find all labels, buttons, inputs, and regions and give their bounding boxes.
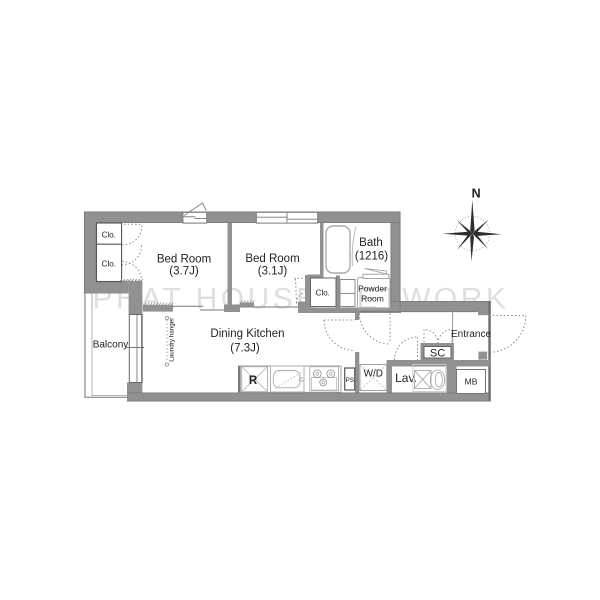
svg-text:(7.3J): (7.3J) [230, 343, 260, 355]
svg-text:Bed Room: Bed Room [245, 253, 299, 265]
svg-text:(3.7J): (3.7J) [169, 266, 199, 278]
svg-text:Lav.: Lav. [395, 371, 417, 385]
svg-text:W/D: W/D [364, 369, 383, 380]
svg-text:(3.1J): (3.1J) [258, 266, 288, 278]
svg-text:Clo.: Clo. [102, 260, 116, 269]
svg-text:SC: SC [430, 348, 445, 360]
svg-text:Clo.: Clo. [316, 289, 330, 298]
svg-text:Room: Room [361, 294, 384, 304]
svg-text:Laundry hanger: Laundry hanger [169, 318, 176, 362]
svg-text:Dining Kitchen: Dining Kitchen [210, 328, 284, 340]
svg-text:R: R [249, 375, 258, 387]
svg-text:Entrance: Entrance [451, 329, 491, 340]
svg-text:MB: MB [465, 377, 478, 387]
svg-text:Clo.: Clo. [102, 231, 116, 240]
svg-text:(1216): (1216) [355, 251, 388, 263]
svg-text:Bed Room: Bed Room [157, 254, 211, 266]
svg-text:N: N [472, 187, 481, 201]
svg-text:Powder: Powder [358, 284, 387, 294]
svg-text:PS: PS [345, 377, 354, 384]
svg-text:Balcony: Balcony [93, 340, 129, 351]
svg-text:Bath: Bath [359, 237, 383, 249]
